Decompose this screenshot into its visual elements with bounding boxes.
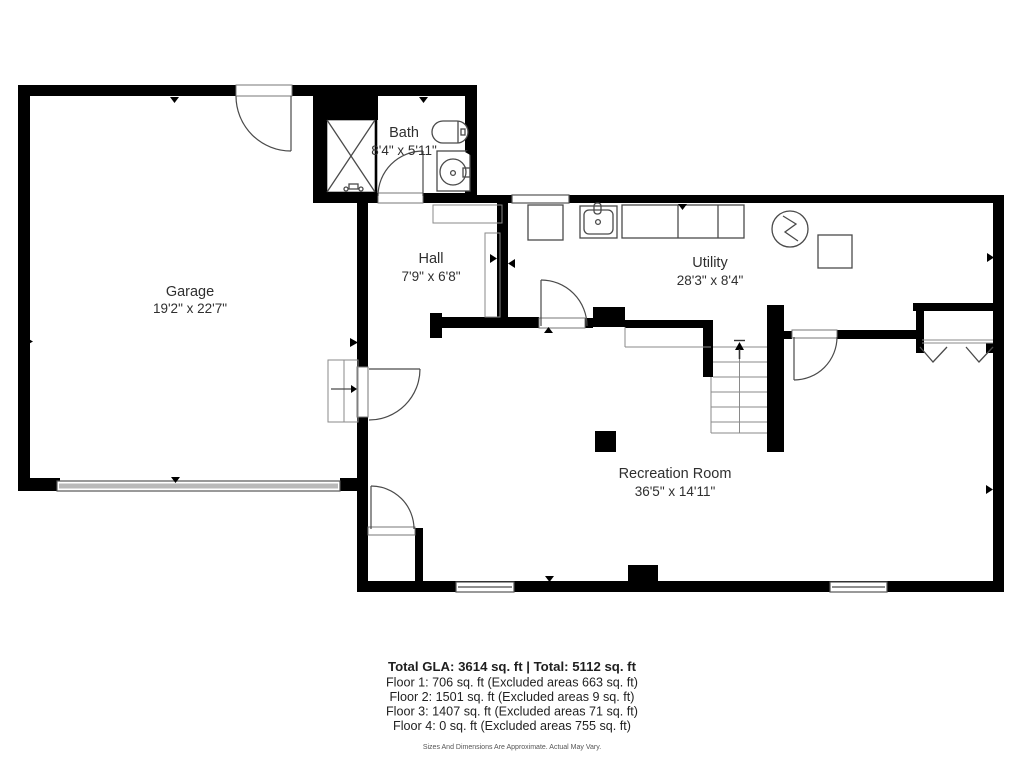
wall-utility-rec-right bbox=[837, 330, 916, 339]
utility-label: Utility bbox=[692, 255, 728, 271]
wall-alcove-right bbox=[415, 528, 423, 583]
hall-label: Hall bbox=[419, 251, 444, 267]
shower-icon bbox=[326, 119, 376, 193]
bath-dims: 8'4" x 5'11" bbox=[371, 143, 437, 158]
wall-stair-right-column bbox=[767, 305, 784, 452]
total-gla-line: Total GLA: 3614 sq. ft | Total: 5112 sq.… bbox=[388, 659, 637, 674]
garage-dims: 19'2" x 22'7" bbox=[153, 301, 227, 316]
garage-door-band bbox=[59, 484, 338, 489]
recreation-label: Recreation Room bbox=[619, 466, 732, 482]
wall-bath-left bbox=[313, 85, 325, 203]
wall-right bbox=[993, 195, 1004, 592]
wall-bottom bbox=[357, 581, 1004, 592]
page-background bbox=[0, 0, 1024, 768]
wall-stair-left bbox=[703, 320, 713, 377]
wall-pillar-block bbox=[593, 307, 625, 327]
utility-sink-icon bbox=[580, 203, 617, 238]
wall-bath-bottom-left bbox=[313, 193, 378, 203]
sill-garage-entry bbox=[236, 85, 292, 96]
wall-to-stairs bbox=[625, 320, 708, 328]
wall-closet-top bbox=[913, 303, 997, 311]
wall-garage-bottom-left bbox=[18, 478, 60, 491]
washer-icon bbox=[528, 205, 563, 240]
wall-rec-post bbox=[595, 431, 616, 452]
wall-garage-rec-lower bbox=[357, 417, 368, 592]
garage-label: Garage bbox=[166, 284, 214, 300]
floor-3-line: Floor 3: 1407 sq. ft (Excluded areas 71 … bbox=[386, 705, 638, 719]
wall-hall-bottom bbox=[430, 317, 539, 328]
water-heater-icon bbox=[772, 211, 808, 247]
storage-box-icon bbox=[818, 235, 852, 268]
sill-utility-left bbox=[539, 318, 585, 328]
hall-dims: 7'9" x 6'8" bbox=[401, 269, 460, 284]
bath-sink-icon bbox=[437, 151, 470, 191]
recreation-dims: 36'5" x 14'11" bbox=[635, 484, 716, 499]
sill-garage-rec bbox=[357, 367, 368, 417]
toilet-icon bbox=[432, 121, 468, 143]
counter-icon bbox=[622, 205, 744, 238]
floor-4-line: Floor 4: 0 sq. ft (Excluded areas 755 sq… bbox=[393, 719, 631, 733]
sill-bath bbox=[378, 193, 423, 203]
wall-closet-left bbox=[916, 311, 924, 353]
utility-dims: 28'3" x 8'4" bbox=[677, 273, 744, 288]
floor-plan: Garage 19'2" x 22'7" Bath 8'4" x 5'11" H… bbox=[0, 0, 1024, 768]
disclaimer-line: Sizes And Dimensions Are Approximate. Ac… bbox=[423, 744, 601, 751]
sill-utility-right bbox=[792, 330, 837, 338]
sill-alcove bbox=[368, 527, 415, 535]
wall-left bbox=[18, 85, 30, 491]
window-utility-top bbox=[512, 195, 569, 203]
floor-1-line: Floor 1: 706 sq. ft (Excluded areas 663 … bbox=[386, 676, 638, 690]
bath-label: Bath bbox=[389, 125, 419, 141]
wall-door-bit bbox=[784, 331, 792, 339]
wall-garage-rec-upper bbox=[357, 193, 368, 367]
floor-2-line: Floor 2: 1501 sq. ft (Excluded areas 9 s… bbox=[389, 690, 634, 704]
wall-chimney-stub bbox=[628, 565, 658, 585]
